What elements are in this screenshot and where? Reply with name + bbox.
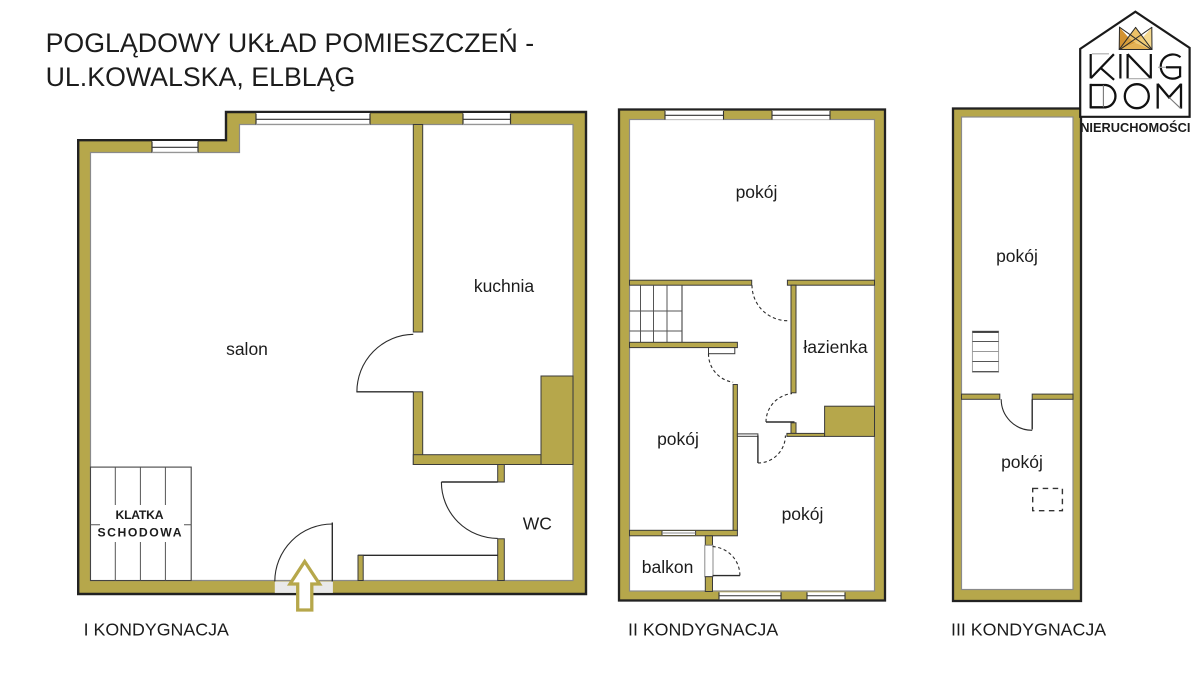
svg-text:WC: WC	[523, 513, 552, 533]
svg-text:II KONDYGNACJA: II KONDYGNACJA	[628, 620, 778, 640]
svg-text:KLATKA: KLATKA	[116, 508, 164, 522]
svg-text:III KONDYGNACJA: III KONDYGNACJA	[951, 620, 1106, 640]
svg-text:pokój: pokój	[657, 429, 699, 449]
svg-text:pokój: pokój	[996, 246, 1038, 266]
svg-text:pokój: pokój	[1001, 452, 1043, 472]
svg-text:kuchnia: kuchnia	[474, 276, 535, 296]
svg-text:balkon: balkon	[642, 557, 694, 577]
svg-text:łazienka: łazienka	[803, 337, 867, 357]
svg-text:pokój: pokój	[782, 504, 824, 524]
svg-text:pokój: pokój	[736, 182, 778, 202]
svg-text:POGLĄDOWY UKŁAD POMIESZCZEŃ -: POGLĄDOWY UKŁAD POMIESZCZEŃ -	[46, 28, 535, 58]
svg-text:salon: salon	[226, 339, 268, 359]
svg-text:NIERUCHOMOŚCI: NIERUCHOMOŚCI	[1080, 120, 1190, 135]
svg-text:SCHODOWA: SCHODOWA	[98, 526, 182, 540]
svg-text:I KONDYGNACJA: I KONDYGNACJA	[84, 620, 229, 640]
svg-text:UL.KOWALSKA, ELBLĄG: UL.KOWALSKA, ELBLĄG	[46, 62, 356, 92]
